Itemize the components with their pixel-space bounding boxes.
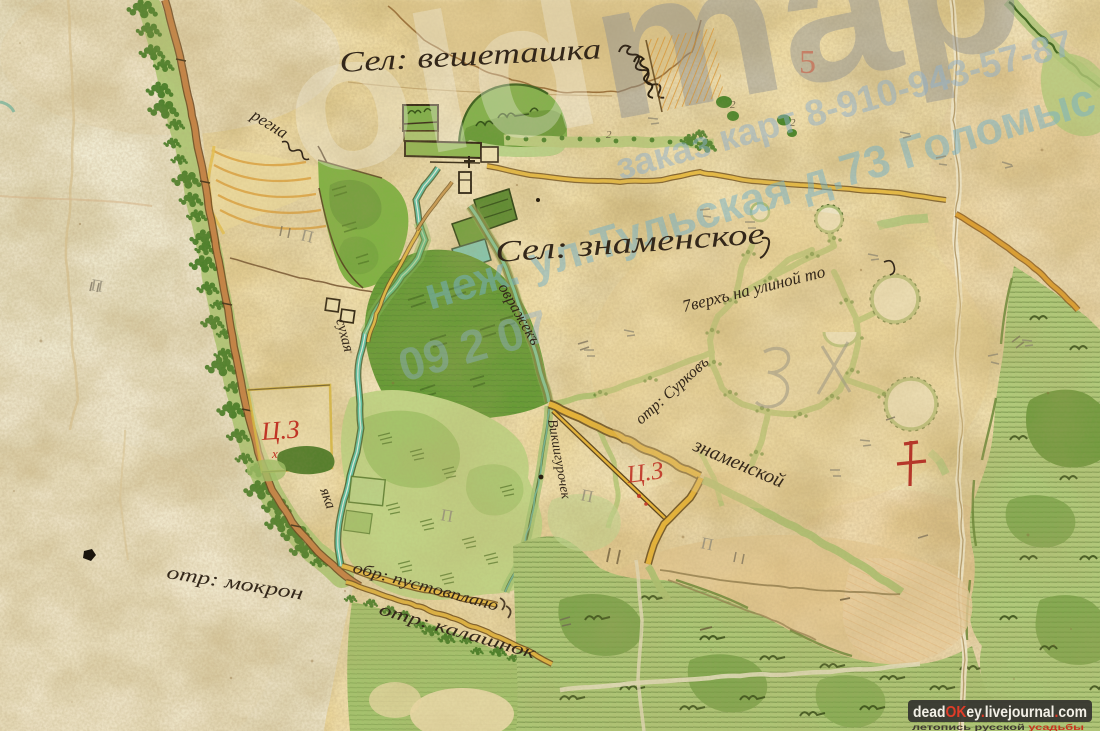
svg-text:Ц.З: Ц.З (624, 457, 665, 489)
svg-text:летопись русской усадьбы: летопись русской усадьбы (912, 723, 1084, 731)
svg-text:deadOKey.livejournal.com: deadOKey.livejournal.com (913, 704, 1087, 721)
svg-text:х: х (271, 446, 278, 461)
svg-text:5: 5 (799, 44, 816, 81)
svg-text:Ц.З: Ц.З (259, 414, 300, 446)
